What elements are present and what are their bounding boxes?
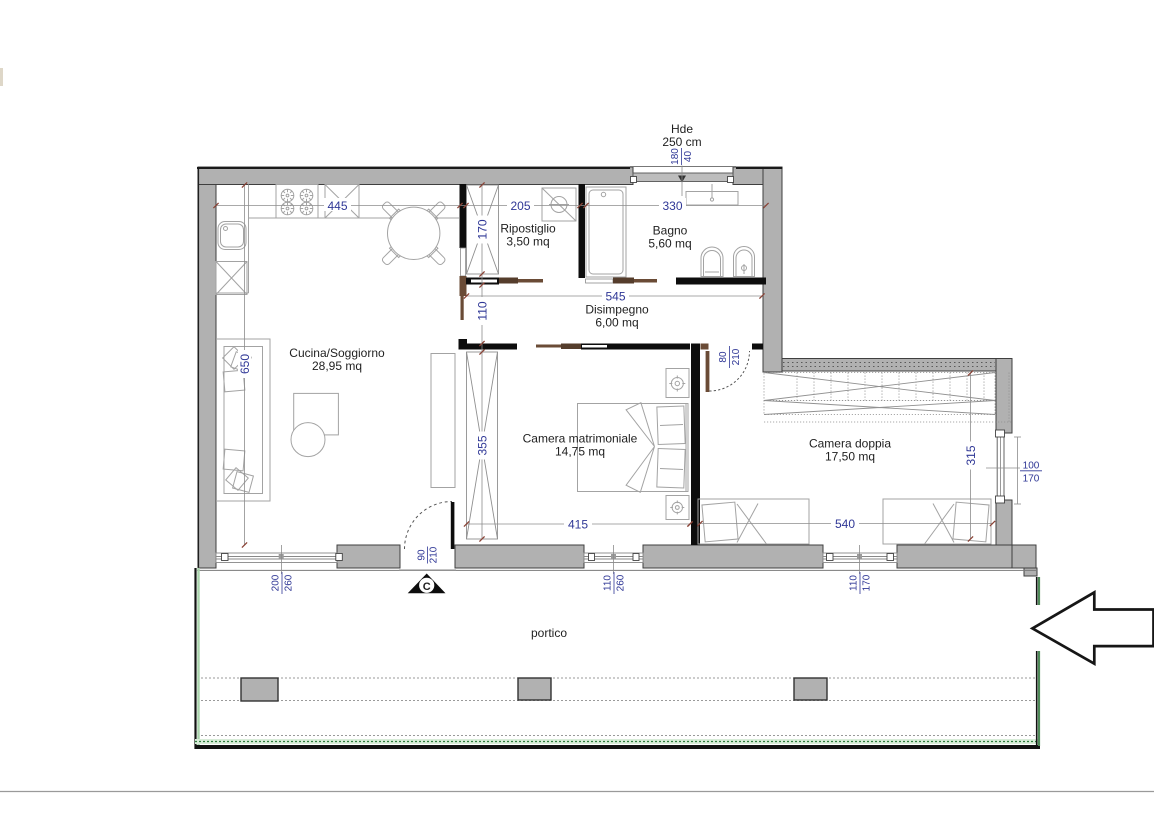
svg-text:260: 260 <box>616 574 627 591</box>
svg-text:Camera matrimoniale: Camera matrimoniale <box>523 432 638 446</box>
svg-text:portico: portico <box>531 626 567 640</box>
svg-text:205: 205 <box>510 199 530 213</box>
svg-text:650: 650 <box>238 354 252 374</box>
svg-text:540: 540 <box>835 517 855 531</box>
svg-text:200: 200 <box>271 574 282 591</box>
svg-text:14,75 mq: 14,75 mq <box>555 445 605 459</box>
svg-text:315: 315 <box>964 445 978 465</box>
svg-text:110: 110 <box>603 575 614 591</box>
svg-text:110: 110 <box>849 575 860 591</box>
svg-text:6,00 mq: 6,00 mq <box>595 316 638 330</box>
svg-text:5,60 mq: 5,60 mq <box>648 237 691 251</box>
svg-text:100: 100 <box>1023 461 1040 472</box>
svg-text:Disimpegno: Disimpegno <box>585 303 649 317</box>
svg-text:415: 415 <box>568 518 588 532</box>
svg-text:330: 330 <box>662 199 682 213</box>
svg-text:355: 355 <box>476 435 490 455</box>
svg-text:80: 80 <box>718 351 729 363</box>
svg-text:C: C <box>423 581 431 593</box>
svg-text:3,50 mq: 3,50 mq <box>506 235 549 249</box>
svg-text:170: 170 <box>862 574 873 591</box>
svg-text:17,50 mq: 17,50 mq <box>825 450 875 464</box>
svg-text:170: 170 <box>476 219 490 239</box>
svg-text:Hde: Hde <box>671 122 693 136</box>
svg-text:180: 180 <box>670 148 681 165</box>
svg-text:210: 210 <box>429 546 440 563</box>
svg-text:28,95 mq: 28,95 mq <box>312 359 362 373</box>
svg-text:260: 260 <box>284 574 295 591</box>
svg-text:445: 445 <box>327 199 347 213</box>
svg-text:170: 170 <box>1023 474 1040 485</box>
svg-text:Bagno: Bagno <box>653 224 688 238</box>
svg-text:40: 40 <box>683 151 694 163</box>
svg-text:110: 110 <box>476 301 490 320</box>
svg-text:Camera doppia: Camera doppia <box>809 437 891 451</box>
svg-text:210: 210 <box>731 348 742 365</box>
svg-text:Cucina/Soggiorno: Cucina/Soggiorno <box>289 346 385 360</box>
svg-text:90: 90 <box>417 549 428 561</box>
svg-text:Ripostiglio: Ripostiglio <box>500 222 556 236</box>
svg-text:250 cm: 250 cm <box>662 135 701 149</box>
svg-text:545: 545 <box>605 290 625 304</box>
